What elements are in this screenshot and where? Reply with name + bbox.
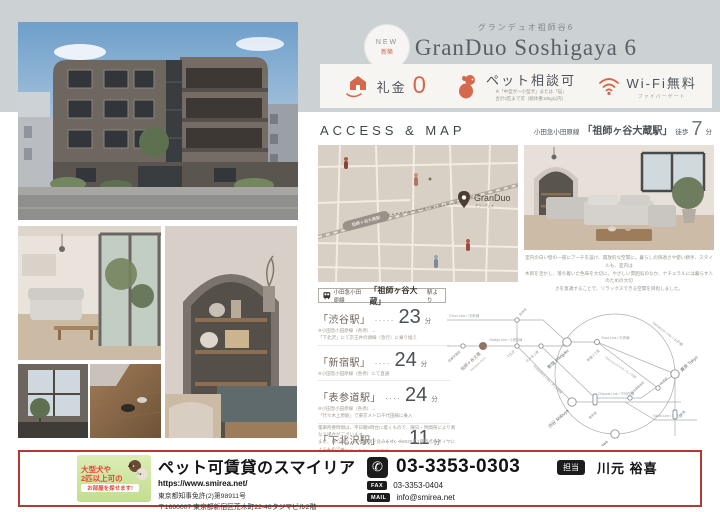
banner-line3: お部屋を探せます! bbox=[81, 484, 139, 492]
wifi-provider: ファイバーゲート bbox=[638, 93, 686, 100]
station-row-minutes: 24 bbox=[405, 386, 427, 404]
disclaimer-line1: 電車所要時間は、平日朝8時台に着くもので、曜日・時間帯により異なる場合がございま… bbox=[318, 424, 458, 438]
station-row-name: 「渋谷駅」 bbox=[318, 311, 371, 326]
train-icon bbox=[323, 291, 331, 300]
station-label-tokyo: 東京 Tokyo bbox=[679, 354, 700, 374]
line-label-marunouchi: Marunouchi Line / 丸ノ内線 bbox=[604, 355, 637, 380]
feature-bar: 礼金 0 ペット相談可 ※「中型犬〜小型犬」または「猫」 合計2匹まで可（総体重… bbox=[320, 64, 712, 108]
map-pin-sublabel: グランデュオ bbox=[475, 203, 494, 208]
station-row-note: 「代々木上原駅」で東京メトロ千代田線に乗入 bbox=[318, 413, 450, 420]
pet-banner: 大型犬や 2匹以上可の お部屋を探せます! bbox=[77, 455, 151, 502]
station-row-note: 「下北沢」にて京王井の頭線（急行）に乗り換え bbox=[318, 335, 450, 342]
mail-badge: MAIL bbox=[367, 493, 390, 502]
line-label-yamanote: Yamanote Line / 山手線 bbox=[651, 320, 684, 347]
walk-prefix: 徒歩 bbox=[675, 126, 688, 138]
access-map-title: ACCESS & MAP bbox=[320, 123, 466, 138]
station-label-shimokitazawa: 下北沢 bbox=[505, 348, 516, 359]
walk-unit: 分 bbox=[706, 126, 713, 138]
interior-photo-living bbox=[18, 226, 161, 360]
station-label-omotesando: 表参道 bbox=[587, 409, 598, 420]
rail-line-name: 小田急小田原線 bbox=[534, 126, 580, 138]
dots: ····· bbox=[375, 315, 395, 325]
interior-photo-window bbox=[18, 364, 88, 438]
dots: ···· bbox=[385, 393, 401, 403]
feature-key-money: 礼金 0 bbox=[320, 74, 451, 98]
station-list-suffix: 駅より bbox=[427, 288, 441, 304]
wifi-label: Wi-Fi無料 bbox=[627, 73, 697, 92]
station-list-header: 小田急小田原線 「祖師ヶ谷大蔵」 駅より bbox=[318, 288, 446, 303]
station-walk-summary: 小田急小田原線 「祖師ヶ谷大蔵駅」 徒歩 7 分 bbox=[534, 120, 712, 138]
property-title: GranDuo Soshigaya 6 bbox=[340, 35, 712, 61]
mail-address[interactable]: info@smirea.net bbox=[396, 493, 454, 502]
station-label-shinjuku3: 新宿三丁目 bbox=[585, 348, 600, 362]
station-row-shibuya: 「渋谷駅」 ····· 23 分 ※小田急小田原線（各停）→ 「下北沢」にて京王… bbox=[318, 303, 450, 346]
station-label-shinjuku: 新宿 Shinjuku bbox=[546, 347, 571, 371]
area-map: 祖師ヶ谷大蔵駅 GranDuo グランデュオ bbox=[318, 145, 518, 282]
company-license: 東京都知事免許(2)第98911号 bbox=[158, 490, 356, 500]
station-row-name: 「新宿駅」 bbox=[318, 354, 371, 369]
line-label-chuo-east: Chuo Line / 中央線 bbox=[601, 335, 630, 340]
station-label-shimbashi: 新橋 bbox=[678, 409, 686, 417]
station-label-kokkai: 国会議事堂前 bbox=[630, 380, 645, 394]
station-row-note: ※小田急小田原線（各停）→ bbox=[318, 328, 450, 335]
key-money-value: 0 bbox=[413, 74, 426, 98]
staff-block: 担当 川元 裕喜 bbox=[557, 458, 658, 477]
pets-note-2: 合計2匹まで可（総体重18kg以内） bbox=[495, 96, 566, 102]
fax-number: 03-3353-0404 bbox=[393, 481, 443, 490]
staff-name: 川元 裕喜 bbox=[597, 458, 658, 477]
station-name: 「祖師ヶ谷大蔵駅」 bbox=[582, 122, 672, 138]
property-title-japanese: グランデュオ祖師谷6 bbox=[340, 22, 712, 33]
access-map-header: ACCESS & MAP 小田急小田原線 「祖師ヶ谷大蔵駅」 徒歩 7 分 bbox=[320, 120, 712, 138]
property-title-block: グランデュオ祖師谷6 GranDuo Soshigaya 6 bbox=[340, 22, 712, 61]
pets-note-1: ※「中型犬〜小型犬」または「猫」 bbox=[495, 89, 566, 95]
station-row-note: ※小田急小田原線（各停）→ bbox=[318, 406, 450, 413]
dots: ···· bbox=[375, 358, 391, 368]
line-label-odakyu: Odakyu Line / 小田急線 bbox=[489, 337, 523, 342]
interior-photo-arch-shelf bbox=[165, 226, 297, 438]
pets-label: ペット相談可 bbox=[486, 70, 576, 89]
fax-badge: FAX bbox=[367, 481, 387, 490]
feature-wifi: Wi-Fi無料 ファイバーゲート bbox=[581, 73, 712, 100]
station-row-shinjuku: 「新宿駅」 ···· 24 分 ※小田急小田原線（各停）にて直通 bbox=[318, 346, 450, 382]
interior-photo-main bbox=[524, 145, 714, 250]
contact-block: ✆ 03-3353-0303 FAX 03-3353-0404 MAIL inf… bbox=[367, 456, 520, 502]
station-row-name: 「表参道駅」 bbox=[318, 389, 381, 404]
staff-badge: 担当 bbox=[557, 460, 585, 475]
company-address: 〒1600007 東京都新宿区荒木町22-48タジマビル2階 bbox=[158, 501, 356, 511]
station-row-unit: 分 bbox=[421, 358, 428, 368]
key-money-label: 礼金 bbox=[377, 77, 407, 96]
station-label-kichijoji: 吉祥寺 bbox=[517, 306, 528, 317]
photo-caption-line1: 室内の白い壁の一部にアーチを設け、開放的な空間に。暮らしの快適さや使い勝手、スタ… bbox=[524, 254, 714, 270]
dogs-illustration bbox=[127, 458, 149, 484]
footer: 大型犬や 2匹以上可の お部屋を探せます! ペット可賃貸のスマイリア https… bbox=[18, 450, 702, 507]
company-block: ペット可賃貸のスマイリア https://www.smirea.net/ 東京都… bbox=[158, 454, 356, 511]
feature-pets: ペット相談可 ※「中型犬〜小型犬」または「猫」 合計2匹まで可（総体重18kg以… bbox=[451, 70, 582, 102]
company-name: ペット可賃貸のスマイリア bbox=[158, 454, 356, 478]
map-pin-label: GranDuo bbox=[474, 193, 511, 203]
photo-caption-line2: 木目を活かし、落ち着いた色味を大切に。やさしい雰囲気のなか、ナチュラルには暮らす… bbox=[524, 270, 714, 286]
rail-network-diagram: Chuo Line / 中央線 Odakyu Line / 小田急線 Chuo … bbox=[444, 294, 716, 446]
station-row-minutes: 23 bbox=[399, 308, 421, 326]
company-url[interactable]: https://www.smirea.net/ bbox=[158, 479, 356, 488]
station-row-unit: 分 bbox=[431, 393, 438, 403]
house-hand-icon bbox=[345, 74, 371, 98]
photo-caption: 室内の白い壁の一部にアーチを設け、開放的な空間に。暮らしの快適さや使い勝手、スタ… bbox=[524, 254, 714, 293]
building-exterior-photo bbox=[18, 22, 298, 220]
station-label-seijo: 成城学園前 bbox=[446, 348, 462, 363]
station-label-shibuya: 渋谷 Shibuya bbox=[546, 407, 570, 430]
station-label-shinagawa: 品川 Shinagawa bbox=[584, 439, 609, 446]
wifi-icon bbox=[597, 76, 621, 96]
station-row-note: ※小田急小田原線（各停）にて直通 bbox=[318, 371, 450, 378]
phone-number: 03-3353-0303 bbox=[396, 456, 520, 478]
station-row-unit: 分 bbox=[425, 315, 432, 325]
station-row-minutes: 24 bbox=[395, 351, 417, 369]
walk-minutes: 7 bbox=[691, 120, 702, 138]
highlighted-station-marker bbox=[479, 342, 487, 350]
photo-caption-line3: さを意識することで、リラックスできる空間を目指しました。 bbox=[524, 285, 714, 293]
dog-icon bbox=[456, 73, 480, 99]
phone-icon: ✆ bbox=[367, 457, 388, 478]
station-label-otemachi: 大手町 bbox=[658, 375, 669, 386]
interior-photo-table bbox=[90, 364, 161, 438]
station-row-omotesando: 「表参道駅」 ···· 24 分 ※小田急小田原線（各停）→ 「代々木上原駅」で… bbox=[318, 381, 450, 424]
line-label-chuo: Chuo Line / 中央線 bbox=[449, 313, 480, 318]
station-list-line: 小田急小田原線 bbox=[334, 288, 367, 304]
